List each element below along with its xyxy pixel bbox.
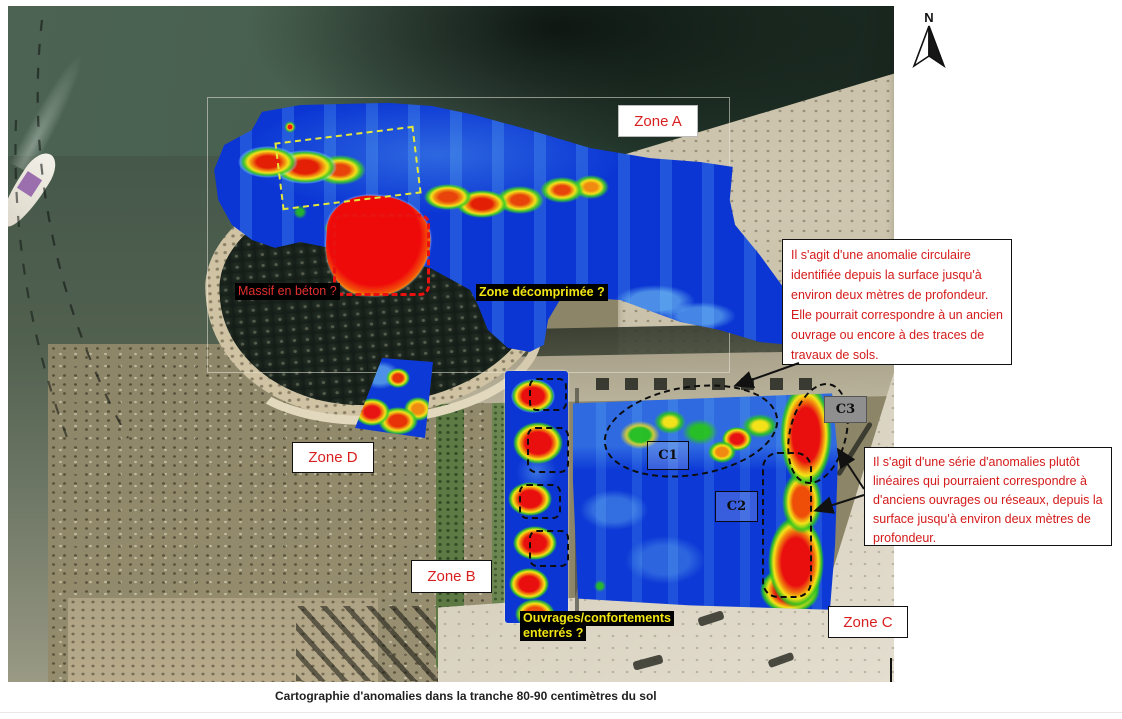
zone-decomprimee-label: Zone décomprimée ? [476,284,608,301]
marker-c2: C2 [715,491,758,522]
dashed-outline-concrete-mass [333,214,430,296]
figure-caption: Cartographie d'anomalies dans la tranche… [275,689,657,703]
zone-d-label-text: Zone D [308,449,357,466]
north-arrow-left-half [914,26,929,66]
photo-edge-tick [890,658,892,682]
zone-b-label-text: Zone B [427,568,475,585]
north-arrow-right-half [929,26,944,66]
zone-c-label-text: Zone C [843,614,892,631]
dashed-outline-b4 [529,530,569,567]
callout-linear-anomalies: Il s'agit d'une série d'anomalies plutôt… [864,447,1112,546]
callout-circular-anomaly: Il s'agit d'une anomalie circulaire iden… [782,239,1012,365]
dashed-outline-linear-anomaly-right [762,452,812,598]
massif-beton-label: Massif en béton ? [235,283,340,300]
page-bottom-rule [0,712,1122,713]
north-label: N [924,10,933,25]
marker-c1: C1 [647,441,689,470]
north-arrow: N [914,10,944,66]
ouvrages-line2: enterrés ? [520,626,586,641]
zone-a-label-text: Zone A [634,113,682,130]
ouvrages-line1: Ouvrages/confortements [520,611,674,626]
zone-b-label: Zone B [411,560,492,593]
ouvrages-enterres-label: Ouvrages/confortements enterrés ? [520,611,660,626]
anomaly-map-figure: Zone A Zone D Zone B Zone C Massif en bé… [0,0,1122,719]
dashed-outline-b3 [519,484,561,519]
zone-c-label: Zone C [828,606,908,638]
marker-c3: C3 [824,396,867,423]
boatyard-marks [296,606,441,681]
dashed-outline-b2 [527,427,569,473]
zone-a-label: Zone A [618,105,698,137]
zone-d-label: Zone D [292,442,374,473]
dashed-outline-b1 [529,378,567,411]
